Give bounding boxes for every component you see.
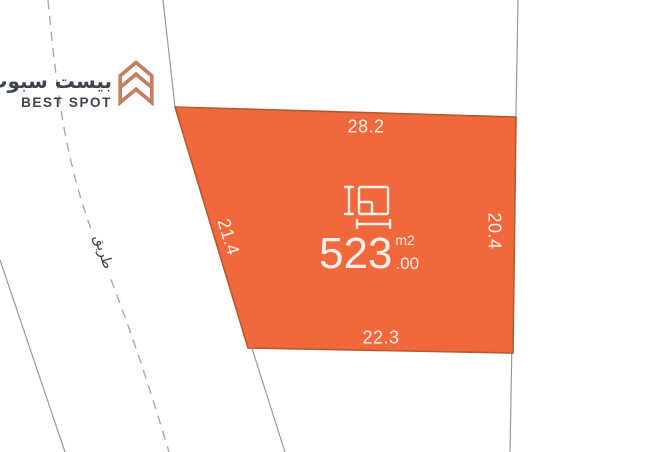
area-measure-icon — [344, 183, 394, 229]
dimension-right: 20.4 — [484, 212, 505, 249]
brand-name-english: BEST SPOT — [21, 95, 112, 110]
plot-area: 523 m2 .00 — [319, 232, 419, 276]
dimension-top: 28.2 — [347, 117, 384, 138]
area-value: 523 — [319, 232, 392, 276]
dimension-bottom: 22.3 — [362, 328, 399, 349]
area-unit: m2 — [395, 233, 414, 247]
area-decimal: .00 — [395, 255, 419, 272]
road-far-edge-line — [0, 260, 65, 452]
brand-chevron-house-icon — [116, 56, 156, 114]
boundary-line-top-left — [163, 0, 175, 107]
brand-logo: بيست سبوت BEST SPOT — [8, 69, 112, 110]
plot-map-canvas: 28.2 21.4 20.4 22.3 523 m2 .00 طريق بيست… — [0, 0, 668, 452]
brand-name-arabic: بيست سبوت — [0, 69, 112, 93]
